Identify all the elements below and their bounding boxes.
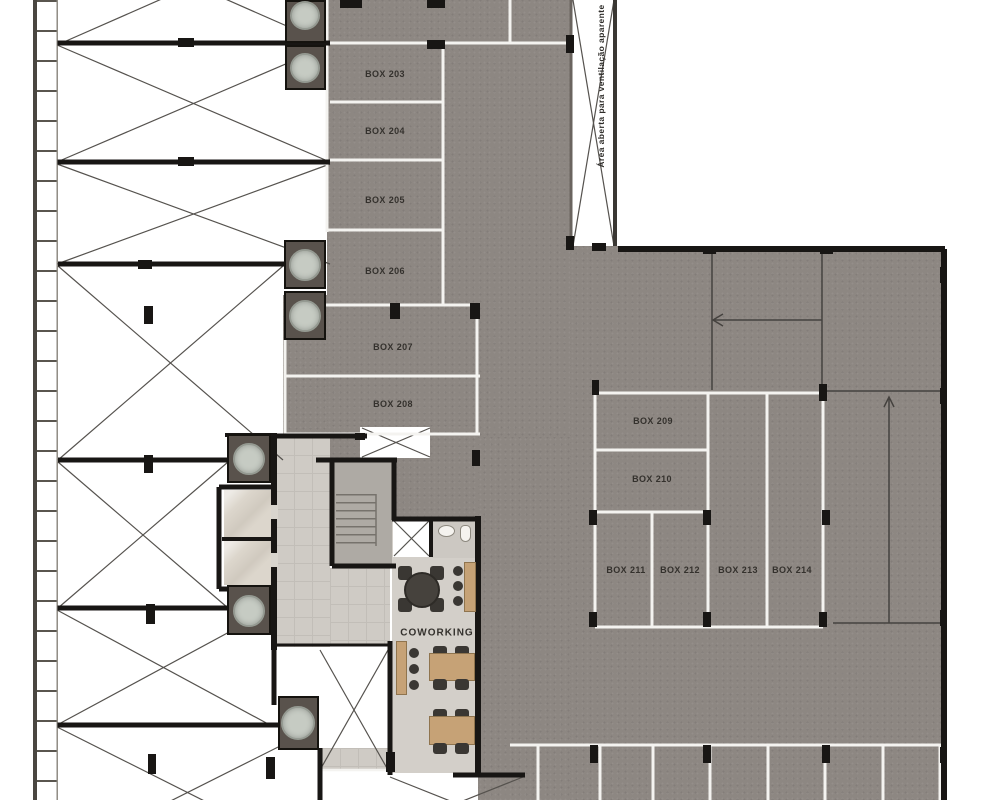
stool xyxy=(409,664,419,674)
round-table xyxy=(404,572,440,608)
stool xyxy=(409,680,419,690)
box-212-label: BOX 212 xyxy=(660,565,700,575)
fan-icon xyxy=(233,443,265,475)
box-208-label: BOX 208 xyxy=(373,399,413,409)
elevator-door-gap xyxy=(271,553,278,567)
box-213-label: BOX 213 xyxy=(718,565,758,575)
ventilation-note-label: Área aberta para ventilação aparente xyxy=(596,4,606,167)
coworking-table xyxy=(429,716,475,745)
fan-icon xyxy=(290,1,320,30)
stool xyxy=(453,566,463,576)
fan-icon xyxy=(289,300,321,332)
chair xyxy=(455,743,469,754)
hall-floor-extension xyxy=(330,568,390,645)
box-214-label: BOX 214 xyxy=(772,565,812,575)
garage-floor-right-block xyxy=(570,246,944,800)
floor-plan: BOX 203 BOX 204 BOX 205 BOX 206 BOX 207 … xyxy=(0,0,1000,800)
stool xyxy=(409,648,419,658)
fan-icon xyxy=(281,706,315,740)
elevator-shaft-void xyxy=(393,521,430,557)
box-203-label: BOX 203 xyxy=(365,69,405,79)
coworking-label: COWORKING xyxy=(400,628,473,639)
elevator-door-gap xyxy=(271,505,278,519)
box-207-label: BOX 207 xyxy=(373,342,413,352)
garage-floor-south-aisle xyxy=(478,437,570,800)
chair xyxy=(455,679,469,690)
box-206-label: BOX 206 xyxy=(365,266,405,276)
elevator-cab xyxy=(224,490,271,537)
box-211-label: BOX 211 xyxy=(606,565,645,575)
hall-floor-south xyxy=(322,748,388,770)
sink-icon xyxy=(438,525,455,537)
box-205-label: BOX 205 xyxy=(365,195,405,205)
fan-icon xyxy=(290,53,320,83)
hall-floor xyxy=(276,437,330,647)
box-210-label: BOX 210 xyxy=(632,474,672,484)
box-204-label: BOX 204 xyxy=(365,126,405,136)
stool xyxy=(453,596,463,606)
ventilation-open-strip xyxy=(572,0,615,246)
elevator-cab xyxy=(224,541,271,585)
coworking-table xyxy=(429,653,475,681)
stool xyxy=(453,581,463,591)
void-notch xyxy=(360,427,430,458)
stair-treads xyxy=(336,494,376,546)
counter-table xyxy=(396,641,407,695)
chair xyxy=(433,679,447,690)
toilet-icon xyxy=(460,525,471,542)
fan-icon xyxy=(289,249,321,281)
boundary-ladder-icon xyxy=(37,0,58,800)
box-209-label: BOX 209 xyxy=(633,416,673,426)
garage-floor-left-block xyxy=(327,0,570,437)
chair xyxy=(433,743,447,754)
counter-table xyxy=(464,562,476,612)
fan-icon xyxy=(233,595,265,627)
